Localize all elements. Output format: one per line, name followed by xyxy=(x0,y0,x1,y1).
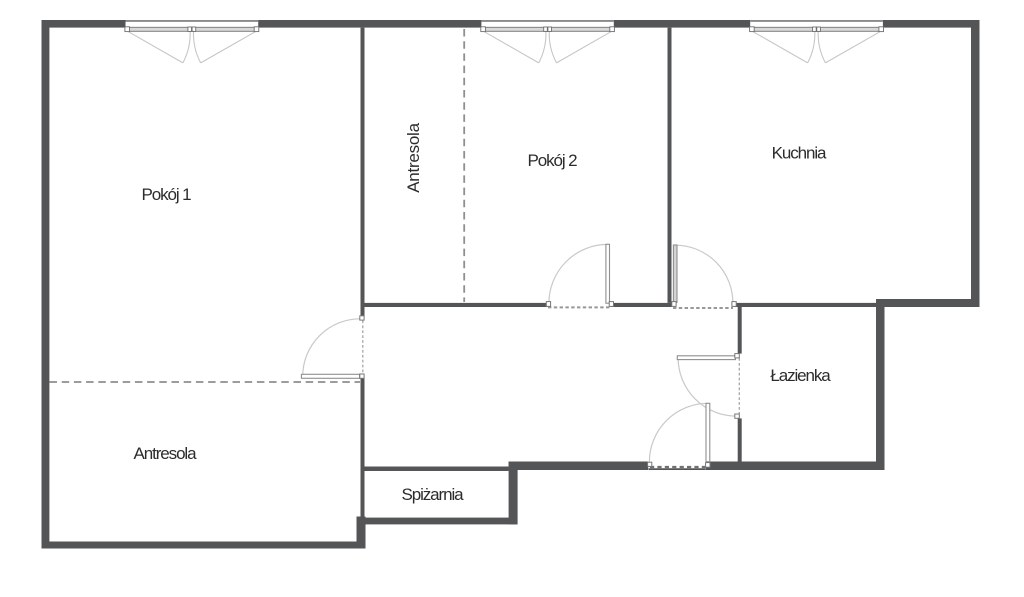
svg-text:Kuchnia: Kuchnia xyxy=(772,144,827,163)
svg-text:Antresola: Antresola xyxy=(404,122,423,192)
svg-text:Spiżarnia: Spiżarnia xyxy=(402,485,465,504)
svg-text:Antresola: Antresola xyxy=(134,444,198,463)
svg-text:Pokój 2: Pokój 2 xyxy=(527,151,577,170)
svg-text:Pokój 1: Pokój 1 xyxy=(141,185,191,204)
svg-text:Łazienka: Łazienka xyxy=(770,366,831,385)
